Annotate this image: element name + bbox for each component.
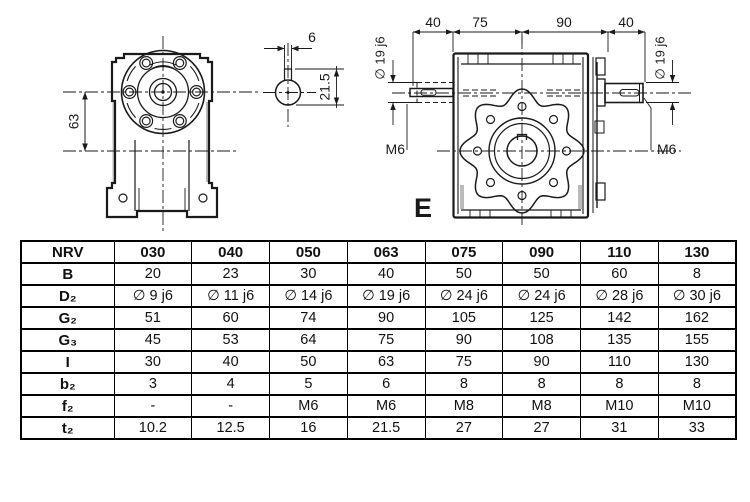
table-cell: ∅ 24 j6 xyxy=(425,285,503,307)
table-row: I304050637590110130 xyxy=(21,351,736,373)
arrowhead xyxy=(334,69,339,77)
table-cell: 51 xyxy=(114,307,192,329)
table-cell: 27 xyxy=(503,417,581,439)
arrowhead xyxy=(522,29,529,34)
table-cell: 155 xyxy=(658,329,736,351)
table-cell: 8 xyxy=(503,373,581,395)
input-shaft xyxy=(410,83,453,103)
table-cell: ∅ 28 j6 xyxy=(581,285,659,307)
table-cell: 90 xyxy=(347,307,425,329)
dimension-table: NRV030040050063075090110130B202330405050… xyxy=(20,240,737,440)
table-cell: 20 xyxy=(114,263,192,285)
table-cell: ∅ 11 j6 xyxy=(192,285,270,307)
input-shaft-hidden-collar xyxy=(417,83,453,103)
table-cell: M8 xyxy=(503,395,581,417)
row-label: b₂ xyxy=(21,373,114,395)
table-cell: 23 xyxy=(192,263,270,285)
dim-label-40-left: 40 xyxy=(425,14,441,30)
arrowhead xyxy=(670,75,675,83)
bolt-hole xyxy=(176,117,184,125)
table-row: D₂∅ 9 j6∅ 11 j6∅ 14 j6∅ 19 j6∅ 24 j6∅ 24… xyxy=(21,285,736,307)
table-cell: 5 xyxy=(270,373,348,395)
table-cell: M10 xyxy=(658,395,736,417)
row-label: G₃ xyxy=(21,329,114,351)
dim-label-40-right: 40 xyxy=(618,14,634,30)
dim-label-d19-left: ∅ 19 j6 xyxy=(373,36,388,79)
dim-label-21-5: 21.5 xyxy=(317,73,333,100)
technical-drawing: 63 6 xyxy=(0,0,750,238)
table-cell: 6 xyxy=(347,373,425,395)
bolt-hole xyxy=(142,117,150,125)
table-cell: 63 xyxy=(347,351,425,373)
column-header: 050 xyxy=(270,241,348,263)
arrowhead xyxy=(292,46,299,51)
table-cell: 30 xyxy=(114,351,192,373)
table-cell: 135 xyxy=(581,329,659,351)
arrowhead xyxy=(446,29,453,34)
bolt-hole xyxy=(550,116,558,124)
table-cell: 8 xyxy=(581,373,659,395)
table-cell: 53 xyxy=(192,329,270,351)
table-cell: 3 xyxy=(114,373,192,395)
table-row: G₂51607490105125142162 xyxy=(21,307,736,329)
arrowhead xyxy=(413,29,420,34)
table-cell: ∅ 30 j6 xyxy=(658,285,736,307)
tap-callout-left: M6 xyxy=(386,104,407,157)
side-view: 40 75 90 40 ∅ 19 j6 xyxy=(373,14,693,228)
table-cell: 21.5 xyxy=(347,417,425,439)
table-cell: 10.2 xyxy=(114,417,192,439)
table-cell: 75 xyxy=(425,351,503,373)
bolt-hole xyxy=(176,59,184,67)
row-label: D₂ xyxy=(21,285,114,307)
view-label-E: E xyxy=(414,193,432,223)
column-header: 110 xyxy=(581,241,659,263)
table-cell: 8 xyxy=(658,373,736,395)
column-header: 040 xyxy=(192,241,270,263)
side-shading-left xyxy=(460,185,464,209)
foot-hole-right xyxy=(199,194,207,202)
table-row: G₃4553647590108135155 xyxy=(21,329,736,351)
row-label: B xyxy=(21,263,114,285)
table-cell: 90 xyxy=(503,351,581,373)
table-cell: 4 xyxy=(192,373,270,395)
foot-hole-left xyxy=(119,194,127,202)
arrowhead xyxy=(390,103,395,111)
table-cell: ∅ 19 j6 xyxy=(347,285,425,307)
table-cell: M8 xyxy=(425,395,503,417)
arrowhead xyxy=(334,98,339,106)
table-header-row: NRV030040050063075090110130 xyxy=(21,241,736,263)
table-cell: 33 xyxy=(658,417,736,439)
table-cell: 16 xyxy=(270,417,348,439)
dim-key-depth: 21.5 xyxy=(295,66,344,108)
table-cell: 110 xyxy=(581,351,659,373)
table-cell: 12.5 xyxy=(192,417,270,439)
section-centerlines xyxy=(263,43,316,127)
table-cell: 45 xyxy=(114,329,192,351)
table-cell: ∅ 14 j6 xyxy=(270,285,348,307)
dimension-table-wrap: NRV030040050063075090110130B202330405050… xyxy=(20,240,737,440)
input-shaft-key xyxy=(421,90,436,95)
arrowhead xyxy=(82,144,88,152)
table-cell: 125 xyxy=(503,307,581,329)
column-header: 130 xyxy=(658,241,736,263)
arrowhead xyxy=(390,75,395,83)
table-cell: 27 xyxy=(425,417,503,439)
front-view: 63 xyxy=(63,36,259,232)
arrowhead xyxy=(601,29,608,34)
table-cell: 40 xyxy=(192,351,270,373)
dim-label-6: 6 xyxy=(308,29,316,45)
table-cell: M10 xyxy=(581,395,659,417)
table-cell: 8 xyxy=(425,373,503,395)
row-label: t₂ xyxy=(21,417,114,439)
arrowhead xyxy=(608,29,615,34)
column-header: 030 xyxy=(114,241,192,263)
arrowhead xyxy=(278,46,285,51)
table-cell: 60 xyxy=(192,307,270,329)
dim-63: 63 xyxy=(66,92,88,151)
table-cell: 50 xyxy=(503,263,581,285)
dim-label-d19-right: ∅ 19 j6 xyxy=(653,36,668,79)
table-cell: 40 xyxy=(347,263,425,285)
arrowhead xyxy=(670,103,675,111)
side-shading-right xyxy=(578,185,582,209)
table-cell: 74 xyxy=(270,307,348,329)
table-row: B202330405050608 xyxy=(21,263,736,285)
table-row: f₂--M6M6M8M8M10M10 xyxy=(21,395,736,417)
bolt-hole xyxy=(487,179,495,187)
row-label: I xyxy=(21,351,114,373)
table-cell: 30 xyxy=(270,263,348,285)
dim-chain-top: 40 75 90 40 xyxy=(413,14,645,86)
bolt-hole xyxy=(487,116,495,124)
dim-label-90: 90 xyxy=(556,14,572,30)
column-header: 063 xyxy=(347,241,425,263)
gearbox-dimension-sheet: 63 6 xyxy=(0,0,750,502)
dim-key-width: 6 xyxy=(264,29,316,69)
table-cell: 8 xyxy=(658,263,736,285)
tap-label-left: M6 xyxy=(386,141,406,157)
table-cell: 64 xyxy=(270,329,348,351)
dim-label-75: 75 xyxy=(472,14,488,30)
output-flange-plate xyxy=(593,57,605,213)
arrowhead xyxy=(453,29,460,34)
bolt-hole xyxy=(550,179,558,187)
table-cell: 60 xyxy=(581,263,659,285)
output-shaft xyxy=(597,79,643,106)
bolt-hole xyxy=(142,59,150,67)
table-cell: ∅ 24 j6 xyxy=(503,285,581,307)
table-cell: - xyxy=(114,395,192,417)
table-cell: 105 xyxy=(425,307,503,329)
table-cell: 50 xyxy=(270,351,348,373)
table-cell: 142 xyxy=(581,307,659,329)
table-cell: 108 xyxy=(503,329,581,351)
table-cell: 50 xyxy=(425,263,503,285)
table-cell: 162 xyxy=(658,307,736,329)
table-row: t₂10.212.51621.527273133 xyxy=(21,417,736,439)
column-header: 090 xyxy=(503,241,581,263)
shaft-section-view: 6 21.5 xyxy=(263,29,344,127)
arrowhead xyxy=(638,29,645,34)
table-cell: M6 xyxy=(270,395,348,417)
row-label: f₂ xyxy=(21,395,114,417)
arrowhead xyxy=(82,92,88,100)
column-header: 075 xyxy=(425,241,503,263)
table-cell: 90 xyxy=(425,329,503,351)
table-row: b₂34568888 xyxy=(21,373,736,395)
table-cell: 31 xyxy=(581,417,659,439)
table-cell: 130 xyxy=(658,351,736,373)
table-cell: M6 xyxy=(347,395,425,417)
row-label: G₂ xyxy=(21,307,114,329)
table-cell: 75 xyxy=(347,329,425,351)
table-cell: - xyxy=(192,395,270,417)
dim-label-63: 63 xyxy=(66,114,82,130)
arrowhead xyxy=(515,29,522,34)
series-header: NRV xyxy=(21,241,114,263)
table-cell: ∅ 9 j6 xyxy=(114,285,192,307)
tap-label-right: M6 xyxy=(657,141,677,157)
dim-shaft-left: ∅ 19 j6 xyxy=(373,36,419,125)
